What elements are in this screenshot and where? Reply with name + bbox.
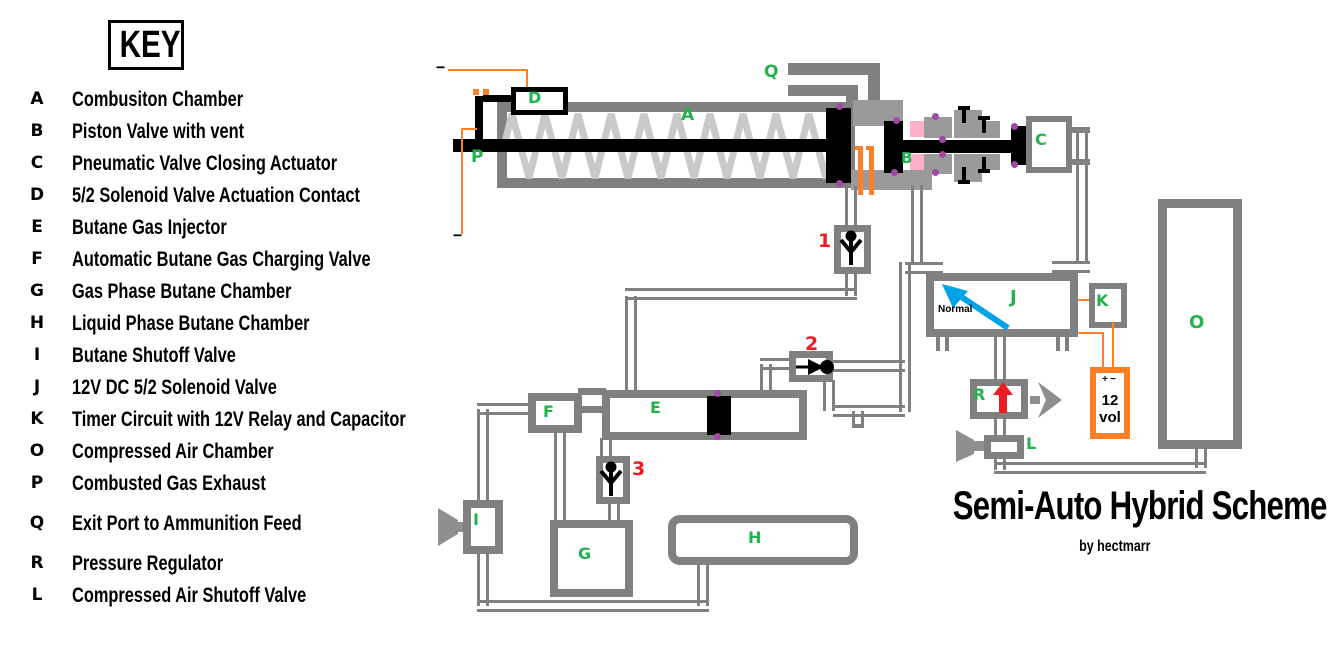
igniter-electrode-1 [858,149,863,195]
valve-2-icon [796,354,840,379]
valve-housing-a [924,117,952,138]
contact-stub [483,95,511,102]
label-O: O [1189,312,1204,333]
label-D: D [528,88,541,107]
solenoid-leg [945,337,949,351]
wire-terminal-bottom: − [453,226,462,244]
pipe [760,364,772,392]
junction-dot [714,433,721,440]
solenoid-leg [1065,337,1069,351]
junction-dot [891,169,898,176]
label-K: K [1096,291,1108,310]
regulator-knob-icon [1030,380,1064,420]
key-row-a: ACombusiton Chamber [14,88,454,114]
key-row-c: CPneumatic Valve Closing Actuator [14,152,454,178]
junction-dot [932,169,939,176]
valve-number-2: 2 [805,333,818,355]
key-row-q: QExit Port to Ammunition Feed [14,512,454,538]
junction-dot [1011,161,1018,168]
valve-seal-top [910,121,924,137]
wire-j-to-battery-h [1078,332,1104,334]
vent-icon-4-cap [978,169,990,173]
valve-housing-d [954,154,982,182]
key-row-r: RPressure Regulator [14,552,454,578]
solenoid-leg [1056,337,1060,351]
key-row-p: PCombusted Gas Exhaust [14,472,454,498]
contact-dot-1 [473,89,479,95]
wire-k-to-battery-v [1112,322,1114,369]
battery-box: +− 12 vol [1090,367,1130,439]
junction-dot [939,136,946,143]
semi-auto-hybrid-scheme-diagram: KEY ACombusiton Chamber BPiston Valve wi… [0,0,1344,654]
igniter-electrode-2 [869,149,874,195]
wire-top-h [448,69,528,71]
solenoid-leg [936,337,940,351]
junction-dot [836,180,843,187]
scheme-title: Semi-Auto Hybrid Scheme [900,484,1330,529]
label-I: I [473,510,479,529]
pipe [994,462,1206,474]
key-row-h: HLiquid Phase Butane Chamber [14,312,454,338]
solenoid-normal-label: Normal [938,304,972,315]
key-row-d: D5/2 Solenoid Valve Actuation Contact [14,184,454,210]
pipe [994,337,1006,383]
vent-icon-3-stem [962,167,966,180]
valve-3-icon [598,460,624,500]
air-shutoff-handle-icon [956,428,986,464]
pipe [477,550,489,606]
junction-dot [1011,123,1018,130]
key-row-e: EButane Gas Injector [14,216,454,242]
wire-bottom-v [461,128,463,234]
pipe [477,409,489,504]
pipe [625,296,637,392]
key-row-g: GGas Phase Butane Chamber [14,280,454,306]
pipe [833,360,905,372]
label-J: J [1010,287,1017,308]
valve-housing-c [954,110,982,138]
label-G: G [578,544,591,563]
junction-dot [836,103,843,110]
pipe [1052,261,1090,273]
label-F: F [543,402,554,421]
junction-dot [939,151,946,158]
key-row-f: FAutomatic Butane Gas Charging Valve [14,248,454,274]
gas-injector-box [602,390,807,440]
pipe [477,600,709,612]
igniter-electrode-2-cap [866,146,874,150]
piston-rod [453,139,830,152]
exit-port-bar-top [788,63,880,75]
regulator-flow-arrow-icon [993,382,1013,413]
exit-port-bar-bottom [788,85,858,96]
key-row-b: BPiston Valve with vent [14,120,454,146]
vent-icon-4-stem [982,157,986,169]
liquid-phase-chamber [668,515,858,565]
key-row-k: KTimer Circuit with 12V Relay and Capaci… [14,408,454,434]
pipe [697,563,709,606]
pipe [1076,133,1088,263]
pipe [911,185,923,262]
contact-dot-2 [483,89,489,95]
wire-j-to-k [1078,299,1089,301]
vent-icon-2-stem [982,120,986,133]
key-row-j: J12V DC 5/2 Solenoid Valve [14,376,454,402]
key-row-l: LCompressed Air Shutoff Valve [14,584,454,610]
junction-dot [714,390,721,397]
wire-terminal-top: − [436,58,445,76]
label-H: H [748,528,761,547]
butane-shutoff-valve-box [463,500,503,554]
gas-phase-chamber [550,520,633,597]
wire-j-to-battery-v [1102,332,1104,369]
charging-valve-box [528,393,582,433]
battery-terminals: +− [1096,373,1124,386]
pipe [845,186,857,227]
contact-bar [475,96,483,142]
key-title: KEY [120,23,181,67]
label-R: R [973,385,985,404]
junction-dot [932,113,939,120]
scheme-credit: by hectmarr [900,538,1330,556]
battery-unit: vol [1096,409,1124,426]
pipe-cap [852,424,864,428]
label-A: A [681,105,694,125]
valve-1-icon [838,229,864,269]
key-title-box: KEY [108,20,184,70]
key-row-i: IButane Shutoff Valve [14,344,454,370]
valve-rod [903,140,1013,153]
closing-actuator-box [1026,116,1072,173]
label-Q: Q [764,62,778,82]
pipe [899,262,911,412]
label-C: C [1035,130,1047,149]
pipe [625,288,857,300]
label-P: P [471,147,483,167]
valve-number-3: 3 [632,458,645,480]
label-L: L [1026,434,1036,453]
injector-plug [707,396,731,435]
vent-icon-1-stem [962,110,966,123]
pipe [554,431,566,522]
label-B: B [901,149,912,167]
junction-dot [893,117,900,124]
label-E: E [650,398,661,417]
igniter-electrode-1-cap [855,146,863,150]
valve-number-1: 1 [818,230,831,252]
pipe [833,405,905,417]
wire-top-v [526,69,528,88]
battery-voltage: 12 [1096,392,1124,409]
air-shutoff-valve-box [984,435,1024,459]
actuator-piston [1011,126,1026,165]
vent-icon-3-cap [958,180,970,184]
pipe [823,380,835,411]
key-row-o: OCompressed Air Chamber [14,440,454,466]
piston-head [826,108,851,183]
pipe [1195,446,1207,468]
wire-bottom-h [461,128,477,130]
